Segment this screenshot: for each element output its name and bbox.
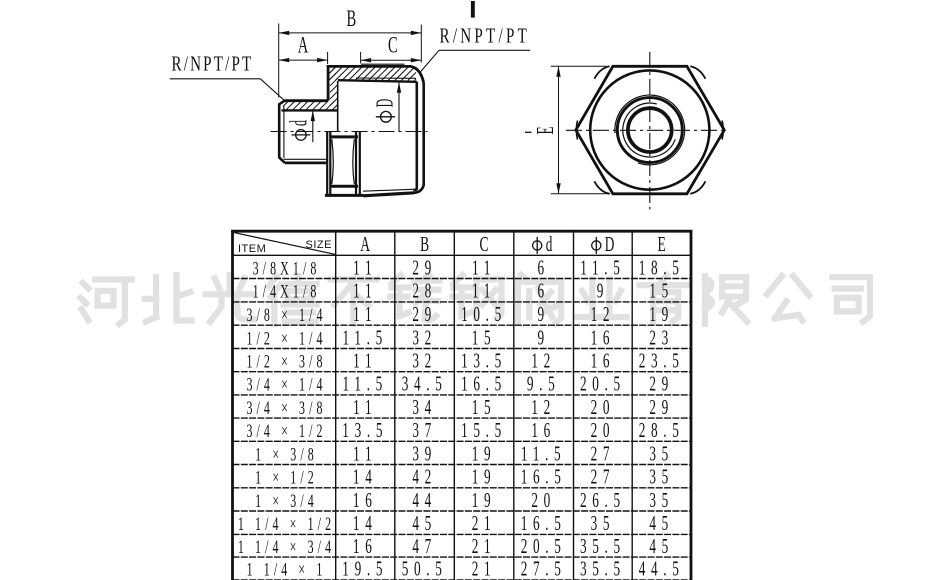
svg-text:15: 15	[472, 395, 497, 419]
svg-text:16: 16	[531, 418, 556, 442]
svg-text:26.5: 26.5	[580, 488, 626, 512]
svg-text:35.5: 35.5	[580, 557, 626, 580]
svg-text:16.5: 16.5	[521, 464, 567, 488]
svg-text:16: 16	[591, 325, 616, 349]
svg-text:A: A	[360, 232, 370, 256]
svg-text:32: 32	[412, 325, 437, 349]
svg-text:20.5: 20.5	[580, 372, 626, 396]
svg-text:47: 47	[412, 534, 437, 558]
svg-text:E: E	[657, 232, 665, 256]
svg-text:19: 19	[472, 441, 497, 465]
svg-text:45: 45	[649, 511, 674, 535]
svg-text:6: 6	[537, 279, 549, 303]
svg-text:14: 14	[353, 511, 378, 535]
svg-text:35: 35	[649, 441, 674, 465]
svg-text:27: 27	[591, 441, 616, 465]
svg-text:16.5: 16.5	[521, 511, 567, 535]
svg-text:E: E	[533, 126, 559, 134]
svg-text:6: 6	[537, 255, 549, 279]
svg-text:1/4X1/8: 1/4X1/8	[253, 282, 321, 302]
svg-text:11: 11	[472, 279, 496, 303]
svg-text:15.5: 15.5	[461, 418, 507, 442]
svg-text:32: 32	[412, 348, 437, 372]
svg-text:9: 9	[537, 302, 549, 326]
svg-text:29: 29	[412, 255, 437, 279]
svg-text:12: 12	[531, 348, 556, 372]
svg-text:39: 39	[412, 441, 437, 465]
svg-text:11: 11	[353, 441, 377, 465]
svg-text:9: 9	[537, 325, 549, 349]
svg-text:27.5: 27.5	[521, 557, 567, 580]
svg-text:11: 11	[353, 279, 377, 303]
svg-text:11.5: 11.5	[580, 255, 625, 279]
svg-text:15: 15	[649, 279, 674, 303]
svg-text:28: 28	[412, 279, 437, 303]
svg-text:C: C	[388, 33, 398, 58]
svg-text:11: 11	[353, 302, 377, 326]
svg-text:11: 11	[353, 255, 377, 279]
svg-text:35: 35	[649, 488, 674, 512]
svg-text:1/2 × 3/8: 1/2 × 3/8	[246, 352, 326, 372]
svg-text:42: 42	[412, 464, 437, 488]
svg-text:21: 21	[472, 534, 497, 558]
svg-text:16: 16	[353, 534, 378, 558]
svg-text:11: 11	[472, 255, 496, 279]
svg-text:35: 35	[649, 464, 674, 488]
svg-text:12: 12	[591, 302, 616, 326]
svg-text:11.5: 11.5	[343, 325, 388, 349]
svg-text:1 × 1/2: 1 × 1/2	[255, 468, 318, 488]
svg-text:1 × 3/4: 1 × 3/4	[255, 491, 318, 511]
svg-text:d: d	[546, 232, 553, 256]
svg-text:13.5: 13.5	[461, 348, 507, 372]
svg-text:1 1/4 × 1/2: 1 1/4 × 1/2	[238, 515, 335, 535]
svg-text:35: 35	[591, 511, 616, 535]
svg-text:16: 16	[353, 488, 378, 512]
svg-text:19: 19	[472, 464, 497, 488]
svg-text:R/NPT/PT: R/NPT/PT	[440, 24, 531, 47]
svg-text:29: 29	[412, 302, 437, 326]
svg-text:21: 21	[472, 557, 497, 580]
svg-text:28.5: 28.5	[639, 418, 685, 442]
svg-text:1/2 × 1/4: 1/2 × 1/4	[246, 329, 326, 349]
svg-text:14: 14	[353, 464, 378, 488]
svg-text:B: B	[420, 232, 429, 256]
svg-text:19.5: 19.5	[342, 557, 388, 580]
svg-text:37: 37	[412, 418, 437, 442]
svg-text:A: A	[298, 33, 309, 58]
svg-text:3/8 × 1/4: 3/8 × 1/4	[246, 305, 326, 325]
svg-text:19: 19	[649, 302, 674, 326]
svg-text:9: 9	[597, 279, 609, 303]
svg-text:11.5: 11.5	[343, 372, 388, 396]
svg-text:44.5: 44.5	[639, 557, 685, 580]
svg-text:20: 20	[531, 488, 556, 512]
svg-text:R/NPT/PT: R/NPT/PT	[172, 52, 254, 75]
svg-text:18.5: 18.5	[639, 255, 685, 279]
svg-text:1 1/4 × 1: 1 1/4 × 1	[247, 560, 327, 580]
svg-text:12: 12	[531, 395, 556, 419]
svg-text:23: 23	[649, 325, 674, 349]
svg-text:13.5: 13.5	[342, 418, 388, 442]
svg-text:21: 21	[472, 511, 497, 535]
svg-text:3/4 × 3/8: 3/4 × 3/8	[246, 398, 326, 418]
svg-text:34: 34	[412, 395, 437, 419]
svg-text:44: 44	[412, 488, 437, 512]
svg-text:B: B	[346, 7, 356, 32]
svg-text:3/4 × 1/2: 3/4 × 1/2	[246, 422, 326, 442]
svg-text:20: 20	[591, 395, 616, 419]
svg-text:ITEM: ITEM	[238, 243, 266, 255]
svg-text:9.5: 9.5	[527, 372, 561, 396]
svg-text:3/8X1/8: 3/8X1/8	[253, 259, 321, 279]
svg-text:3/4 × 1/4: 3/4 × 1/4	[246, 375, 326, 395]
svg-text:34.5: 34.5	[402, 372, 448, 396]
svg-text:D: D	[605, 232, 615, 256]
svg-text:20: 20	[591, 418, 616, 442]
svg-text:23.5: 23.5	[639, 348, 685, 372]
svg-text:27: 27	[591, 464, 616, 488]
svg-text:d: d	[286, 120, 313, 126]
svg-text:D: D	[372, 99, 399, 108]
svg-text:11.5: 11.5	[521, 441, 566, 465]
svg-text:35.5: 35.5	[580, 534, 626, 558]
svg-text:16: 16	[591, 348, 616, 372]
svg-text:11: 11	[353, 348, 377, 372]
svg-text:15: 15	[472, 325, 497, 349]
svg-text:29: 29	[649, 395, 674, 419]
svg-text:SIZE: SIZE	[306, 239, 332, 251]
svg-text:C: C	[479, 232, 488, 256]
svg-text:29: 29	[649, 372, 674, 396]
svg-text:1 1/4 × 3/4: 1 1/4 × 3/4	[238, 537, 335, 557]
svg-text:16.5: 16.5	[461, 372, 507, 396]
svg-text:19: 19	[472, 488, 497, 512]
svg-text:11: 11	[353, 395, 377, 419]
svg-text:1 × 3/8: 1 × 3/8	[255, 445, 318, 465]
svg-text:45: 45	[649, 534, 674, 558]
svg-text:45: 45	[412, 511, 437, 535]
svg-text:20.5: 20.5	[521, 534, 567, 558]
svg-text:50.5: 50.5	[402, 557, 448, 580]
svg-text:10.5: 10.5	[461, 302, 507, 326]
